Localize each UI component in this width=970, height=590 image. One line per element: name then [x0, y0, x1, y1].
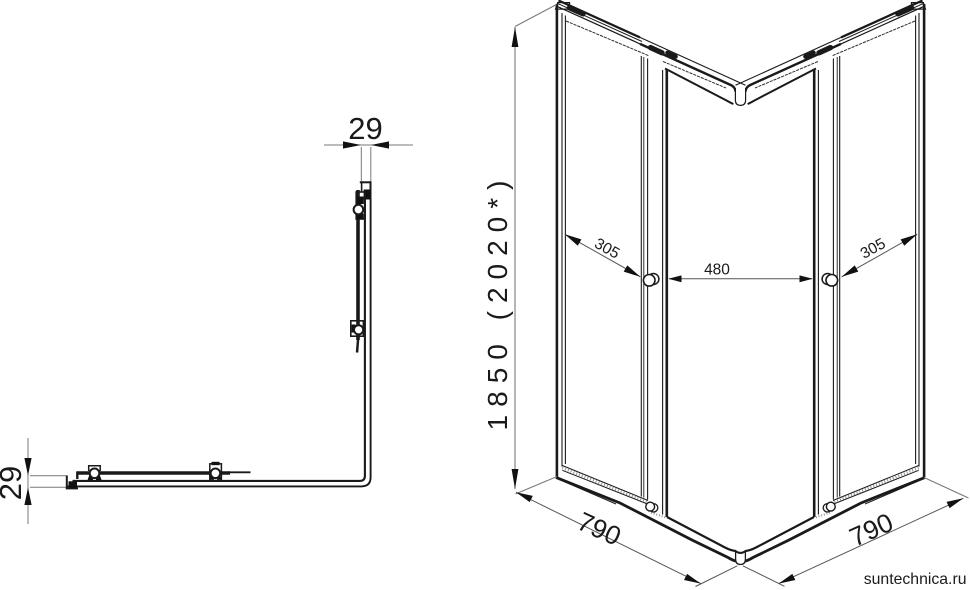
svg-text:1850 (2020*): 1850 (2020*) [482, 173, 513, 431]
svg-text:suntechnica.ru: suntechnica.ru [864, 571, 967, 588]
svg-text:480: 480 [704, 262, 730, 279]
svg-text:29: 29 [0, 466, 28, 500]
svg-text:29: 29 [348, 111, 382, 146]
